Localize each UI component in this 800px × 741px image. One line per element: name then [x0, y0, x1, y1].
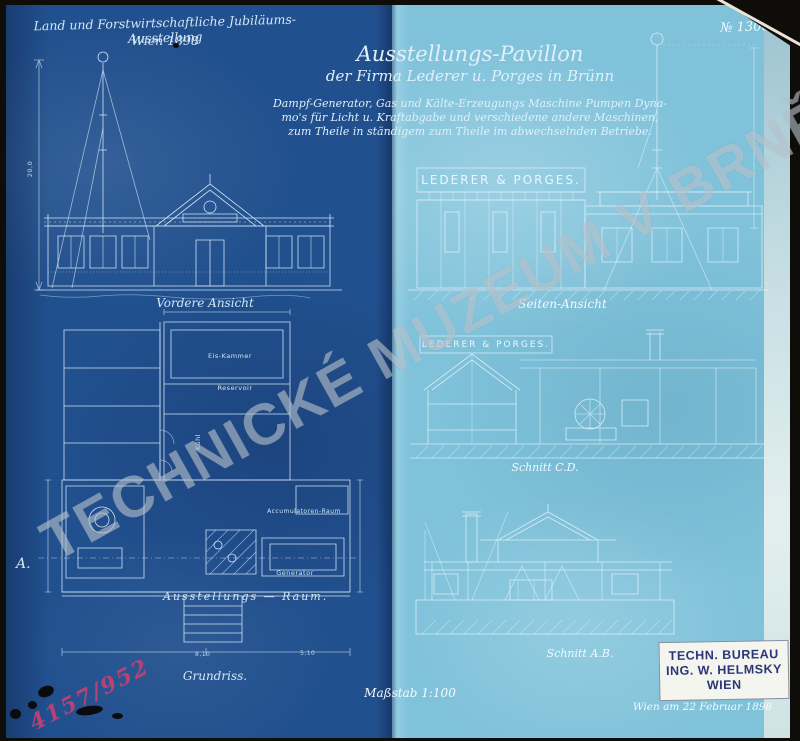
section-ab-label: Schnitt A.B.: [515, 647, 645, 660]
stamp-line3: WIEN: [707, 678, 742, 694]
date-note: Wien am 22 Februar 1898: [615, 701, 790, 713]
front-elevation-label: Vordere Ansicht: [130, 296, 280, 310]
room-label-reservoir: Reservoir: [200, 384, 270, 392]
scale-label: Maßstab 1:100: [345, 686, 475, 700]
exhibition-hall-label: Ausstellungs — Raum.: [163, 590, 328, 603]
section-cd-label: Schnitt C.D.: [480, 461, 610, 474]
title-line1: Ausstellungs-Pavillon: [300, 42, 640, 66]
description-line3: zum Theile in ständigem zum Theile im ab…: [240, 125, 700, 138]
building-sign-section-cd: LEDERER & PORGES.: [420, 338, 552, 352]
stamp-line2: ING. W. HELMSKY: [666, 662, 782, 679]
description-line1: Dampf-Generator, Gas und Kälte-Erzeugung…: [240, 97, 700, 110]
ink-blot: [10, 709, 21, 719]
description-line2: mo's für Licht u. Kraftabgabe und versch…: [240, 111, 700, 124]
side-view-label: Seiten-Ansicht: [490, 297, 635, 311]
ink-blot: [173, 43, 179, 48]
room-label-ice-chamber: Eis-Kammer: [195, 352, 265, 360]
blueprint-scan: Land und Forstwirtschaftliche Jubiläums-…: [0, 0, 800, 741]
room-label-generator: Generator: [265, 569, 325, 577]
dimension-plan-right: 5,10: [300, 650, 315, 657]
dimension-mast-height: 20,0: [26, 161, 34, 177]
room-label-cooling: Kühl: [194, 434, 202, 450]
paper-right-edge: [764, 5, 790, 738]
engineer-stamp: TECHN. BUREAU ING. W. HELMSKY WIEN: [658, 640, 789, 701]
plan-label: Grundriss.: [160, 669, 270, 683]
ink-blot: [28, 701, 37, 709]
room-label-accumulator: Accumulatoren-Raum: [258, 508, 350, 515]
dimension-plan-left: 8,10: [195, 651, 210, 658]
building-sign-side-view: LEDERER & PORGES.: [417, 169, 585, 191]
exhibition-header-line2: Wien 1898: [20, 33, 310, 48]
ink-blot: [112, 713, 123, 719]
section-marker-a: A.: [16, 556, 31, 572]
title-line2: der Firma Lederer u. Porges in Brünn: [280, 67, 660, 85]
